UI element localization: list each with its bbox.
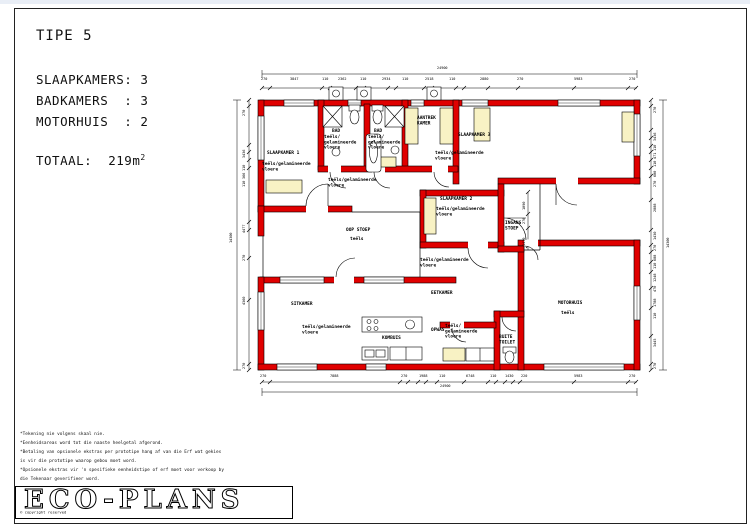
dim-label: 270 xyxy=(401,374,407,378)
dim-total-top: 24900 xyxy=(437,66,448,70)
note-line: die Tekenaar geverifieer word. xyxy=(20,476,99,481)
dim-label: 2880 xyxy=(480,77,488,81)
dim-label: 4360 xyxy=(242,297,246,305)
dim-label: 3847 xyxy=(290,77,298,81)
room-label-oop-stoep: OOP STOEP xyxy=(346,227,370,232)
logo-box: ECO-PLANS © copyright reserved xyxy=(15,486,293,519)
room-label-motorhuis: MOTORHUIS xyxy=(558,300,582,305)
room-label-eetkamer: EETKAMER xyxy=(431,290,453,295)
dim-total-right: 14300 xyxy=(666,237,670,248)
dim-label: 110 xyxy=(242,165,246,171)
dim-label: 110 xyxy=(653,145,657,151)
dim-label: 270 xyxy=(653,181,657,187)
dim-label: 270 xyxy=(242,255,246,261)
dim-label: 110 xyxy=(653,313,657,319)
dim-label: 110 xyxy=(653,263,657,269)
toilet-icon xyxy=(373,110,382,124)
dim-label: 5983 xyxy=(574,374,582,378)
sink-bowl-icon xyxy=(406,320,415,329)
floor-label-hall: teëls/gelamineerde vloere xyxy=(328,177,377,188)
dim-label: 270 xyxy=(653,245,657,251)
dim-label: 1788 xyxy=(653,299,657,307)
floor-label: teëls/gelamineerde vloere xyxy=(302,324,351,335)
room-label-bad1: BAD xyxy=(332,128,340,133)
dim-label: 688 xyxy=(653,255,657,261)
dim-label: 270 xyxy=(242,363,246,369)
dim-label: 7888 xyxy=(330,374,338,378)
dim-label: 270 xyxy=(242,110,246,116)
floor-label: teëls/gelamineerde vloere xyxy=(436,206,485,217)
floor-label: teëls/ gelamineerde vloere xyxy=(445,323,477,339)
copyright-text: © copyright reserved xyxy=(20,510,66,514)
dim-label: 110 xyxy=(439,374,445,378)
dim-label: 2518 xyxy=(425,77,433,81)
dim-label: 110 xyxy=(402,77,408,81)
floor-label-living: teëls/gelamineerde vloere xyxy=(420,257,469,268)
dim-label: 270 xyxy=(629,374,635,378)
dim-label: 1248 xyxy=(653,274,657,282)
dim-label: 270 xyxy=(653,107,657,113)
dim-label: 3436 xyxy=(242,150,246,158)
room-label-sitkamer: SITKAMER xyxy=(291,301,313,306)
floor-label: teëls xyxy=(561,310,574,315)
room-label-kombuis: KOMBUIS xyxy=(382,335,401,340)
room-label-bad2: BAD xyxy=(374,128,382,133)
dim-label: 110 xyxy=(653,161,657,167)
floor-label: teëls/ gelamineerde vloere xyxy=(324,134,356,150)
dim-label: 3436 xyxy=(653,133,657,141)
dim-label: 2362 xyxy=(338,77,346,81)
dim-label: 110 xyxy=(360,77,366,81)
dim-label: 270 xyxy=(517,77,523,81)
dim-label: 5983 xyxy=(574,77,582,81)
floor-label: teëls xyxy=(350,236,363,241)
dim-label: 1988 xyxy=(419,374,427,378)
dim-label: 4477 xyxy=(242,225,246,233)
toilet-icon xyxy=(505,351,514,363)
note-line: is vir die prototipe waarop gebou moet w… xyxy=(20,458,137,463)
dim-label: 110 xyxy=(449,77,455,81)
dim-label: 270 xyxy=(522,218,526,224)
dim-label: 366 xyxy=(242,173,246,179)
room-label-slaapkamer1: SLAAPKAMER 1 xyxy=(267,150,299,155)
dim-label: 110 xyxy=(322,77,328,81)
floor-label: teëls/gelamineerde vloere xyxy=(262,161,311,172)
room-label-slaapkamer2: SLAAPKAMER 2 xyxy=(440,196,472,201)
room-label-ingang-stoep: INGANG STOEP xyxy=(505,220,521,231)
dim-label: 270 xyxy=(260,374,266,378)
dim-label: 3445 xyxy=(653,339,657,347)
dim-label: 471 xyxy=(653,153,657,159)
dim-label: 2934 xyxy=(382,77,390,81)
note-line: *Eenheidsareas word tot die naaste heelg… xyxy=(20,440,163,445)
room-label-opwas: OPWAS xyxy=(431,327,444,332)
room-label-aantrekkamer: AANTREK KAMER xyxy=(417,115,436,126)
dim-label: 270 xyxy=(261,77,267,81)
dim-label: 2888 xyxy=(653,204,657,212)
dim-total-bottom: 24900 xyxy=(440,384,451,388)
note-line: *Opsionele ekstras vir 'n spesifieke een… xyxy=(20,467,224,472)
floor-label: teëls/gelamineerde vloere xyxy=(435,150,484,161)
toilet-icon xyxy=(350,110,359,124)
dim-label: 220 xyxy=(521,374,527,378)
dim-label: 110 xyxy=(242,181,246,187)
floor-label: teëls/ gelamineerde vloere xyxy=(368,134,400,150)
dim-label: 270 xyxy=(629,77,635,81)
dim-label: 270 xyxy=(653,363,657,369)
room-label-buite-toilet: BUITE TOILET xyxy=(499,334,515,345)
dim-label: 110 xyxy=(490,374,496,378)
note-line: *Tekening nie volgens skaal nie. xyxy=(20,431,105,436)
dim-label: 600 xyxy=(653,171,657,177)
room-label-slaapkamer3: SLAAPKAMER 3 xyxy=(458,132,490,137)
dim-label: 1090 xyxy=(522,202,526,210)
dim-label: 470 xyxy=(653,286,657,292)
dim-label: 1430 xyxy=(505,374,513,378)
dim-total-left: 14300 xyxy=(229,232,233,243)
note-line: *Betaling van opsionele ekstras per prot… xyxy=(20,449,221,454)
drawing-sheet: { "titleblock": { "type_label": "TIPE 5"… xyxy=(0,0,750,532)
dim-label: 6748 xyxy=(466,374,474,378)
dim-label: 1430 xyxy=(522,238,526,246)
dim-label: 1430 xyxy=(653,232,657,240)
